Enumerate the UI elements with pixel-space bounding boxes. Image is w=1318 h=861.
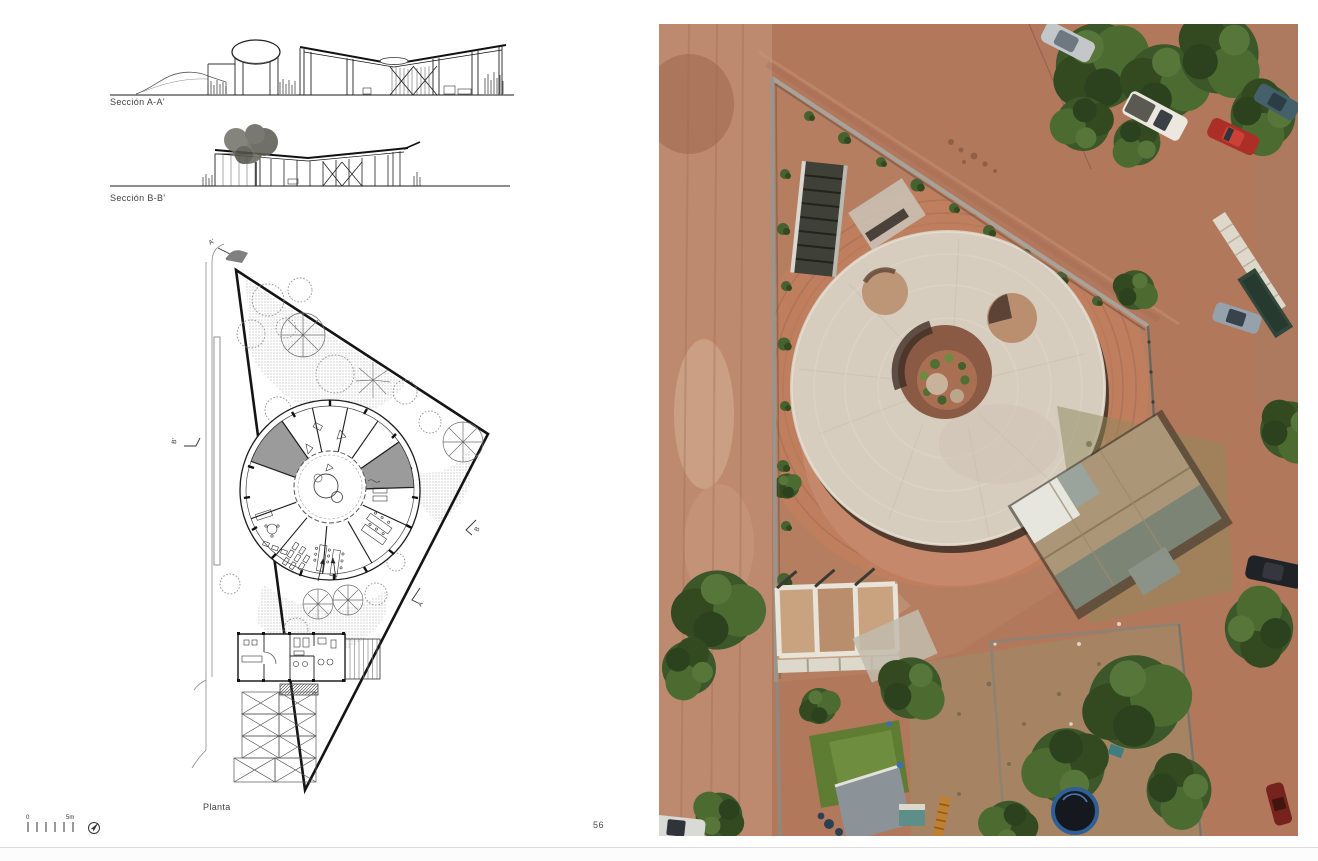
scale-5m-label: 5m [66, 815, 74, 821]
north-arrow-icon [89, 821, 100, 833]
section-aa-drawing [108, 12, 518, 104]
book-spread: Sección A-A' Sección [0, 0, 1318, 861]
plan-marker-a-prime: A' [208, 238, 216, 247]
scale-zero-label: 0 [26, 815, 30, 821]
page-edge [0, 847, 1318, 861]
plan-marker-a: A [417, 600, 426, 608]
section-aa-label: Sección A-A' [110, 97, 165, 107]
aerial-photo [659, 24, 1298, 836]
plan-marker-b-prime: B' [171, 438, 178, 444]
scale-bar: 0 5m [22, 810, 118, 840]
plan-marker-b: B [473, 526, 481, 533]
section-bb-label: Sección B-B' [110, 193, 165, 203]
trampoline [1053, 789, 1097, 833]
page-number: 56 [593, 820, 604, 830]
section-bb-drawing [108, 122, 513, 192]
plan-label: Planta [203, 802, 231, 812]
site-plan-drawing: A' [168, 232, 498, 807]
